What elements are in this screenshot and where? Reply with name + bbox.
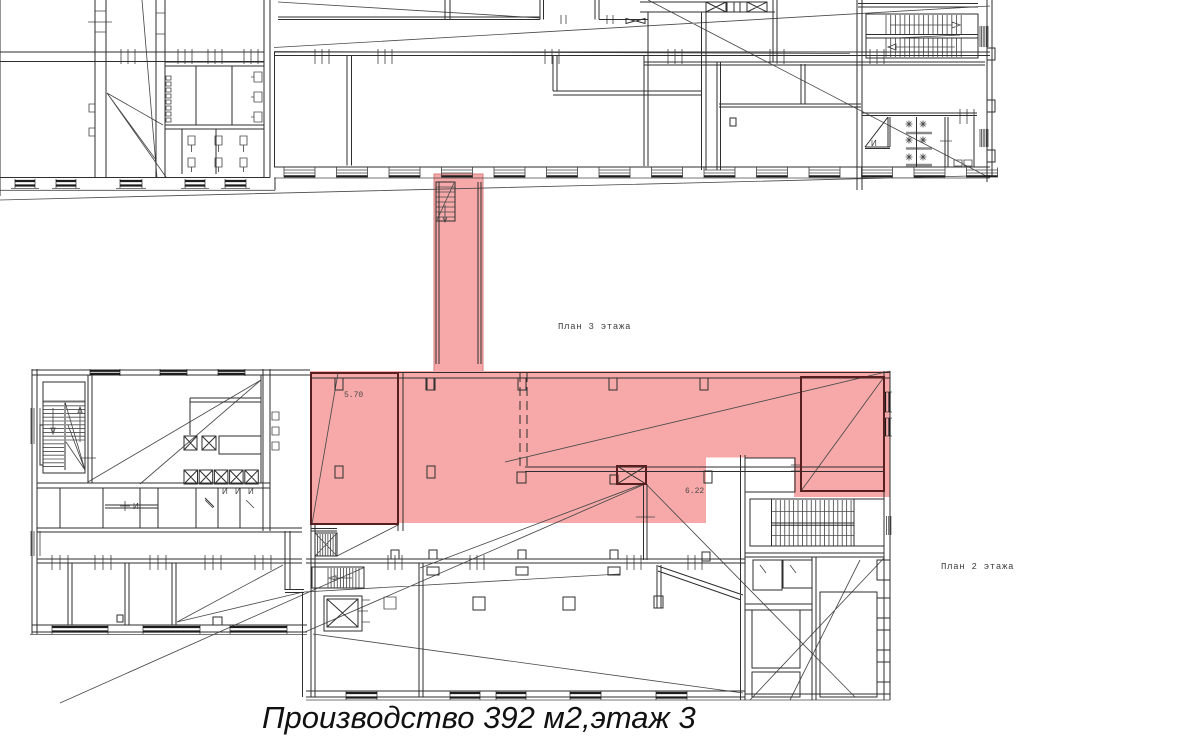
svg-text:5.70: 5.70 [344, 391, 363, 400]
svg-text:План 3 этажа: План 3 этажа [558, 322, 631, 332]
svg-text:И: И [871, 139, 877, 148]
svg-text:И: И [222, 487, 228, 496]
svg-text:И: И [133, 502, 139, 511]
svg-text:6.22: 6.22 [685, 487, 704, 496]
svg-text:Производство 392 м2,этаж 3: Производство 392 м2,этаж 3 [262, 700, 696, 735]
svg-text:И: И [235, 487, 241, 496]
svg-text:План 2 этажа: План 2 этажа [941, 562, 1014, 572]
svg-text:И: И [248, 487, 254, 496]
